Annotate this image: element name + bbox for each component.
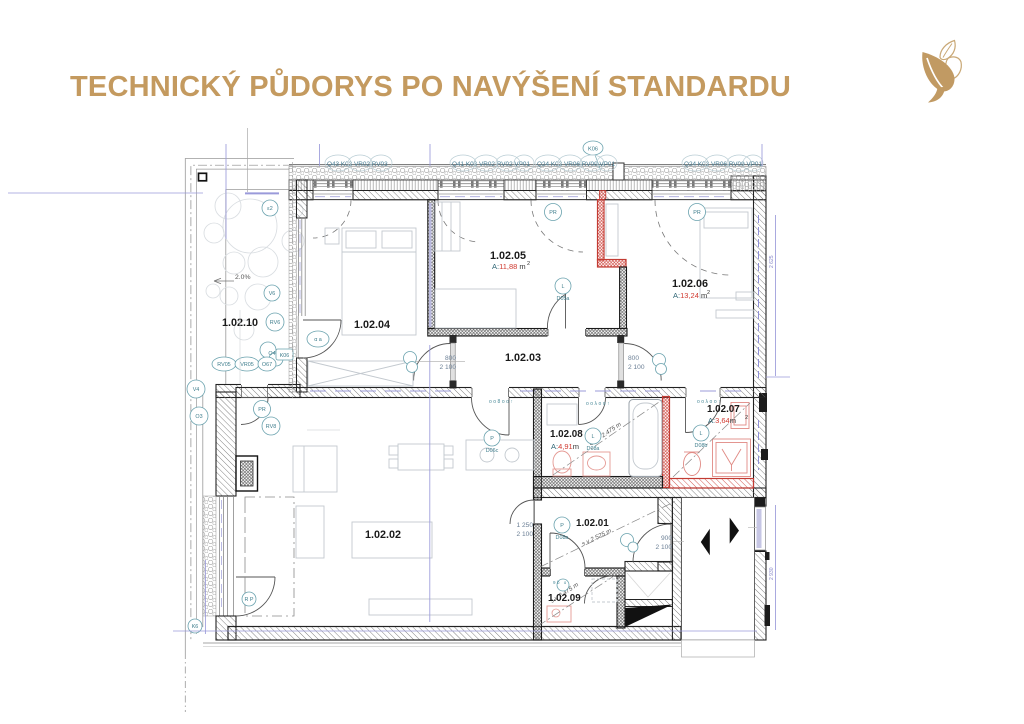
svg-text:D08b: D08b bbox=[695, 443, 708, 449]
svg-text:2 930: 2 930 bbox=[769, 567, 775, 580]
svg-text:2 100: 2 100 bbox=[655, 544, 672, 551]
svg-text:V4: V4 bbox=[193, 387, 200, 393]
svg-text:PR: PR bbox=[549, 210, 557, 216]
svg-text:800: 800 bbox=[445, 355, 456, 362]
svg-text:K6: K6 bbox=[192, 624, 199, 630]
svg-text:P: P bbox=[490, 436, 494, 442]
svg-text:2 100: 2 100 bbox=[439, 364, 456, 371]
svg-text:O4: O4 bbox=[268, 351, 275, 357]
svg-text:2 100: 2 100 bbox=[628, 364, 645, 371]
svg-text:1.02.05: 1.02.05 bbox=[490, 250, 526, 262]
svg-text:P: P bbox=[560, 523, 564, 529]
svg-text:1.02.07: 1.02.07 bbox=[707, 404, 740, 415]
svg-text:1.02.02: 1.02.02 bbox=[365, 529, 401, 541]
svg-text:D08a: D08a bbox=[587, 446, 600, 452]
svg-text:Q43 K03 VR02 RV03: Q43 K03 VR02 RV03 bbox=[327, 161, 388, 168]
svg-text:ε2: ε2 bbox=[267, 206, 272, 212]
svg-text:900: 900 bbox=[661, 535, 672, 542]
svg-text:L: L bbox=[700, 431, 703, 437]
svg-text:D06c: D06c bbox=[486, 448, 499, 454]
svg-text:K06: K06 bbox=[588, 147, 598, 153]
svg-text:K06: K06 bbox=[280, 353, 290, 359]
svg-text:L: L bbox=[592, 434, 595, 440]
svg-text:PR: PR bbox=[693, 210, 701, 216]
svg-text:O67: O67 bbox=[262, 362, 272, 368]
svg-text:R P: R P bbox=[245, 597, 254, 603]
svg-text:PR: PR bbox=[258, 407, 266, 413]
svg-text:O3: O3 bbox=[195, 414, 202, 420]
svg-text:oo8oo↑: oo8oo↑ bbox=[489, 399, 514, 405]
svg-text:L: L bbox=[562, 284, 565, 290]
svg-text:A:13,24 m: A:13,24 m bbox=[673, 291, 707, 300]
svg-text:800: 800 bbox=[628, 355, 639, 362]
svg-text:2: 2 bbox=[527, 261, 530, 267]
svg-text:A:4,91m: A:4,91m bbox=[551, 442, 579, 451]
svg-text:2: 2 bbox=[745, 415, 748, 421]
svg-text:1.02.06: 1.02.06 bbox=[672, 278, 708, 290]
svg-text:D08a: D08a bbox=[556, 535, 569, 541]
svg-text:RV8: RV8 bbox=[266, 424, 276, 430]
svg-text:ooλoo↑: ooλoo↑ bbox=[697, 399, 722, 405]
svg-text:ooλoo↑: ooλoo↑ bbox=[586, 401, 611, 407]
svg-text:D05a: D05a bbox=[557, 296, 570, 302]
svg-text:RV05: RV05 bbox=[217, 362, 230, 368]
svg-text:1.02.03: 1.02.03 bbox=[505, 352, 541, 364]
svg-text:1.02.08: 1.02.08 bbox=[550, 429, 583, 440]
svg-text:1.02.09: 1.02.09 bbox=[548, 593, 581, 604]
svg-text:VR05: VR05 bbox=[240, 362, 254, 368]
svg-text:2: 2 bbox=[707, 290, 710, 296]
svg-text:A:3,64m: A:3,64m bbox=[708, 416, 736, 425]
svg-text:1.02.01: 1.02.01 bbox=[576, 518, 609, 529]
svg-text:α a: α a bbox=[314, 337, 322, 343]
svg-text:9b o: 9b o bbox=[553, 580, 568, 585]
svg-text:1.02.04: 1.02.04 bbox=[354, 319, 390, 331]
svg-text:2.0%: 2.0% bbox=[235, 274, 251, 281]
svg-text:2 625: 2 625 bbox=[769, 255, 775, 268]
svg-text:RV6: RV6 bbox=[270, 320, 280, 326]
svg-text:1 250: 1 250 bbox=[516, 522, 533, 529]
svg-text:s v 2.525 m: s v 2.525 m bbox=[581, 527, 613, 547]
svg-text:V6: V6 bbox=[269, 291, 276, 297]
svg-text:2 100: 2 100 bbox=[516, 531, 533, 538]
svg-text:A:11,88 m: A:11,88 m bbox=[492, 262, 526, 271]
